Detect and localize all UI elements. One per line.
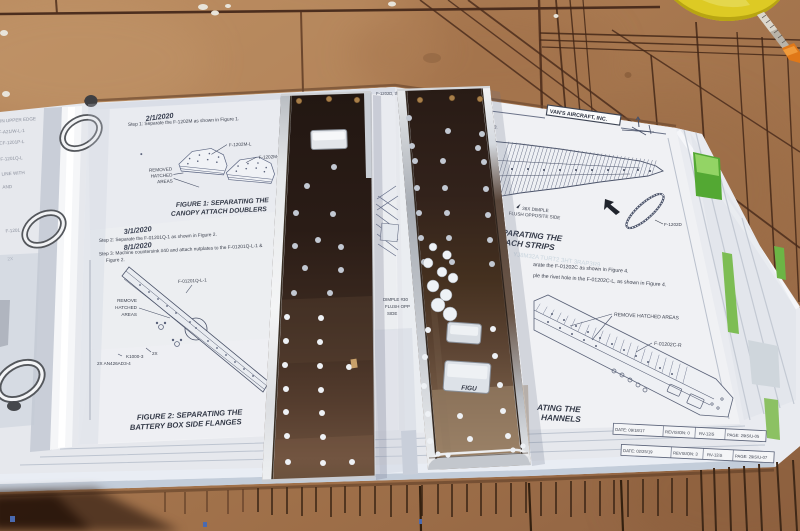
svg-text:F-1201: F-1201 (5, 227, 20, 233)
svg-text:AREAS: AREAS (157, 178, 173, 184)
svg-text:DIMPLE #30: DIMPLE #30 (383, 297, 408, 302)
svg-text:FIGU: FIGU (461, 385, 477, 393)
svg-text:HATCHED: HATCHED (115, 305, 138, 310)
svg-text:Figure 2.: Figure 2. (106, 257, 125, 264)
svg-text:RV-12iS: RV-12iS (707, 452, 723, 458)
svg-text:AREAS: AREAS (121, 312, 137, 317)
svg-text:2X: 2X (152, 351, 158, 356)
svg-text:RV-12iS: RV-12iS (699, 431, 715, 437)
svg-text:K1000-3: K1000-3 (126, 354, 144, 359)
svg-text:AND: AND (2, 184, 13, 190)
svg-text:SIDE: SIDE (387, 311, 397, 316)
svg-text:FLUSH OPP: FLUSH OPP (385, 304, 410, 309)
svg-text:REMOVE: REMOVE (117, 298, 137, 303)
svg-text:2X AN426AD3-4: 2X AN426AD3-4 (97, 361, 131, 366)
svg-text:F-1202D: F-1202D (664, 222, 683, 227)
